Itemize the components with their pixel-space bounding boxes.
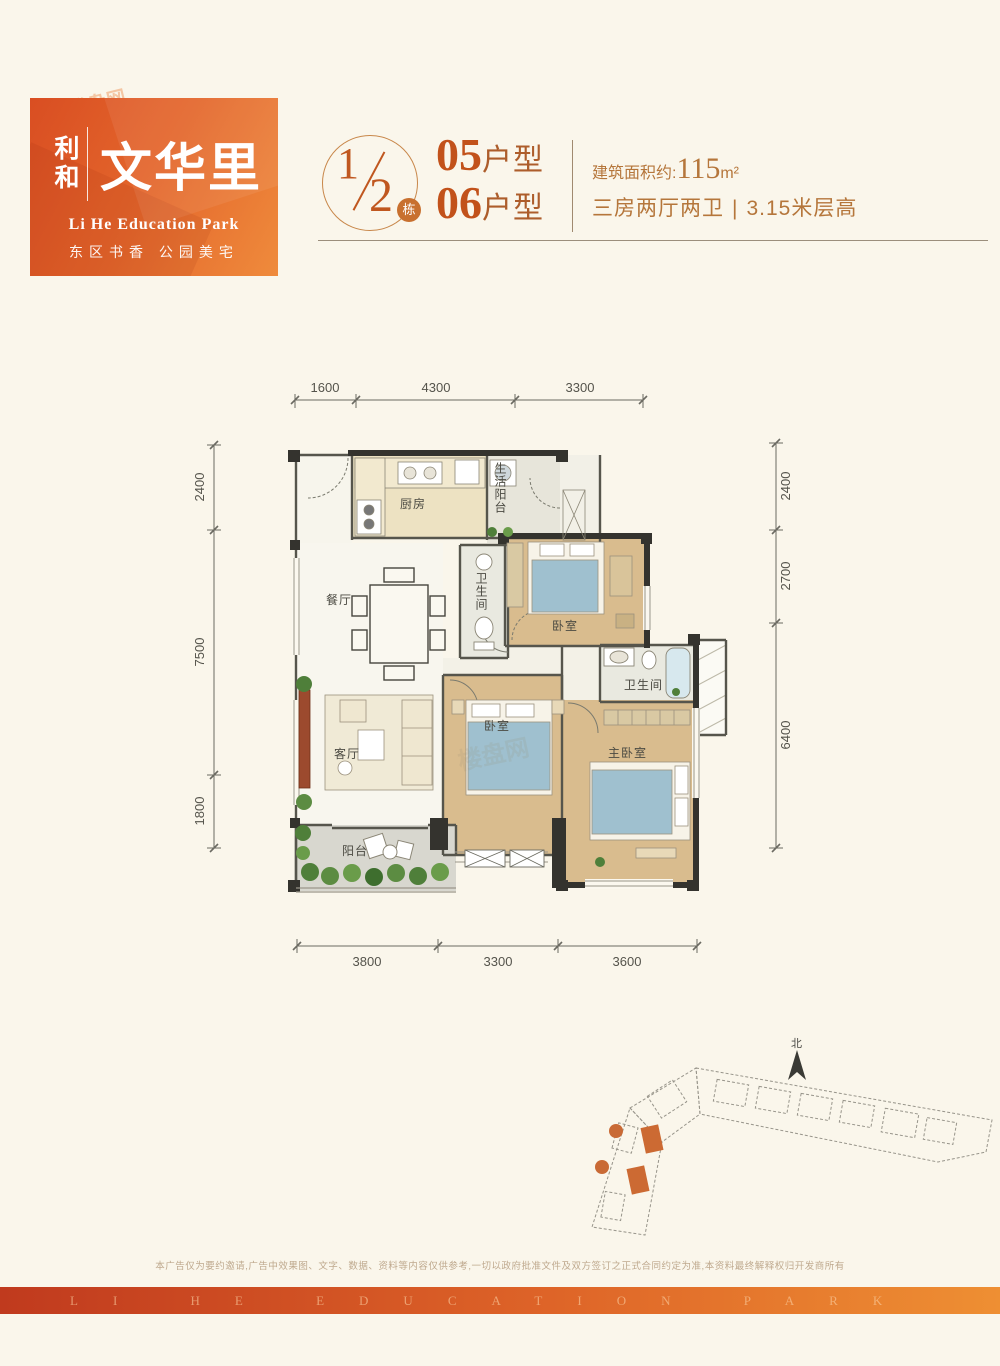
highlighted-units: [595, 1124, 664, 1195]
label-bath: 卫生间: [474, 572, 488, 611]
label-kitchen: 厨房: [400, 496, 426, 511]
layout-text: 三房两厅两卫: [592, 197, 724, 220]
brand-logo-block: 利和 文华里 Li He Education Park 东区书香 公园美宅: [30, 98, 278, 276]
north-label: 北: [791, 1037, 802, 1050]
dim-right-3: 6400: [778, 721, 793, 750]
dim-bottom-2: 3300: [484, 954, 513, 969]
block-denominator: 2: [369, 168, 393, 223]
project-name: 文华里: [100, 126, 262, 201]
footer-band: LI HE EDUCATION PARK: [0, 1287, 1000, 1314]
brand-name-vertical: 利和: [52, 135, 77, 193]
unit-05-number: 05: [436, 129, 482, 180]
area-value: 115: [676, 152, 720, 185]
dim-right-1: 2400: [778, 472, 793, 501]
disclaimer-text: 本广告仅为要约邀请,广告中效果图、文字、数据、资料等内容仅供参考,一切以政府批准…: [0, 1258, 1000, 1272]
north-arrow: 北: [788, 1037, 806, 1080]
dim-top-2: 4300: [422, 380, 451, 395]
label-master-bath: 卫生间: [624, 678, 663, 692]
area-label: 建筑面积约:: [592, 165, 676, 182]
header-rule: [318, 240, 988, 241]
dim-top-1: 1600: [311, 380, 340, 395]
dim-left-1: 2400: [192, 473, 207, 502]
label-bedroom2: 卧室: [484, 718, 510, 733]
dim-bottom-3: 3600: [613, 954, 642, 969]
label-dining: 餐厅: [326, 592, 352, 607]
project-tagline: 东区书香 公园美宅: [30, 242, 278, 262]
label-master: 主卧室: [608, 745, 647, 760]
floor-plan: 厨房 生活阳台 餐厅 卫生间 卧室 卫生间 客厅 卧室 主卧室 阳台 楼盘网: [170, 368, 810, 998]
dim-left-3: 1800: [192, 797, 207, 826]
logo-divider: [87, 127, 88, 201]
unit-06-suffix: 户型: [482, 192, 544, 225]
layout-info: 三房两厅两卫|3.15米层高: [592, 192, 857, 222]
dim-bottom-1: 3800: [353, 954, 382, 969]
block-unit-badge: 栋: [397, 198, 421, 222]
label-living: 客厅: [334, 746, 360, 761]
label-bedroom1: 卧室: [552, 618, 578, 633]
label-balcony: 阳台: [342, 843, 368, 858]
label-service-balcony: 生活阳台: [493, 462, 507, 514]
area-info: 建筑面积约:115m²: [592, 152, 739, 186]
height-text: 3.15米层高: [746, 197, 857, 220]
project-name-english: Li He Education Park: [30, 216, 278, 234]
dim-top-3: 3300: [566, 380, 595, 395]
site-key-map: 北: [570, 1020, 1000, 1260]
dim-left-2: 7500: [192, 638, 207, 667]
unit-05-suffix: 户型: [482, 144, 544, 177]
poster-page: 楼盘网 loupan.com 利和 文华里 Li He Education Pa…: [0, 0, 1000, 1366]
unit-06-number: 06: [436, 177, 482, 228]
block-numerator: 1: [337, 138, 359, 189]
info-separator: |: [732, 197, 738, 220]
dim-right-2: 2700: [778, 562, 793, 591]
header-vertical-divider: [572, 140, 573, 232]
area-unit: m²: [720, 165, 739, 182]
block-number-circle: 1 2 栋: [322, 135, 418, 231]
ac-platform: [465, 850, 544, 867]
